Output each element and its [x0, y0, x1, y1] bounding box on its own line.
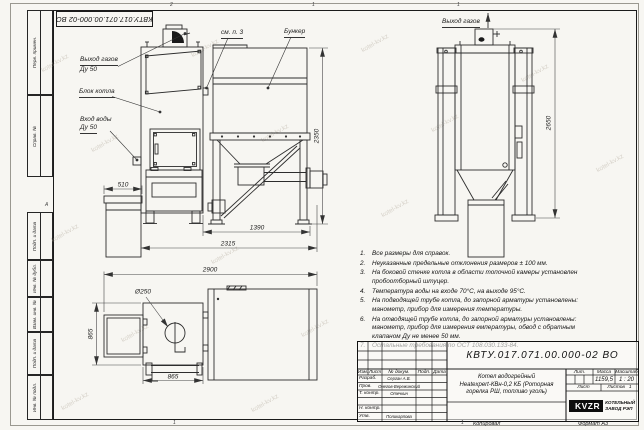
side-feeder-box	[468, 200, 504, 257]
callout-text: Блок котла	[79, 88, 115, 98]
note-text: Температура воды на входе 70°С, на выход…	[372, 288, 584, 297]
note-text: На боковой стенке котла в области топочн…	[372, 269, 584, 286]
note-number: 2.	[360, 260, 372, 269]
dim-2350: 2350	[314, 129, 321, 143]
callout-text: Ду 50	[80, 124, 97, 134]
tb-role-name: Онегов-Вережинский	[382, 383, 416, 391]
tb-sheets-label: Листов	[607, 385, 624, 390]
dim-865-horizontal: 865	[168, 374, 179, 381]
note-item: 2.Неуказанные предельные отклонения разм…	[360, 260, 636, 269]
bunker-box	[213, 48, 307, 133]
callout-text: Выход газов	[442, 18, 480, 28]
tb-lit-label: Лит.	[566, 369, 593, 375]
zone-number-bottom: 1	[173, 420, 176, 426]
callout-text: Выход газов	[80, 56, 118, 66]
note-number: 6.	[360, 316, 372, 342]
tb-product-title: Котел водогрейный Heatexpert-КВн-0,2 КБ …	[447, 369, 566, 402]
callout-gas-out-front: Выход газов Ду 50	[80, 56, 118, 74]
ash-box-flange	[104, 196, 142, 203]
middle-door	[154, 133, 197, 167]
note-item: 5.На подводящей трубе котла, до запорной…	[360, 297, 636, 314]
tb-mass-value: 1159,5	[593, 375, 615, 384]
dim-2650: 2650	[546, 116, 553, 130]
tb-product-line: Heatexpert-КВн-0,2 КБ (Роторная	[459, 382, 553, 390]
tb-role-name	[382, 405, 416, 413]
feeder-chute	[238, 167, 264, 185]
copied-label: Копировал	[473, 421, 500, 427]
note-item: 1.Все размеры для справок.	[360, 250, 636, 259]
callout-bunker: Бункер	[284, 28, 305, 38]
callout-text: Ду 50	[80, 66, 97, 73]
tb-role-label: Т. контр.	[358, 390, 383, 398]
tb-role-name: Серган А.В.	[382, 375, 416, 383]
side-view	[435, 13, 535, 257]
ash-box-top	[104, 315, 143, 357]
dim-1390: 1390	[250, 225, 264, 232]
dim-510: 510	[118, 182, 129, 189]
zone-letter-left: А	[45, 202, 48, 208]
side-chimney	[475, 29, 493, 45]
callout-gas-out-side: Выход газов	[442, 18, 480, 28]
note-number: 4.	[360, 288, 372, 297]
dim-865-vertical: 865	[88, 329, 95, 340]
callout-boiler-block: Блок котла	[79, 88, 115, 98]
note-number: 5.	[360, 297, 372, 314]
side-body	[455, 45, 515, 170]
note-number: 1.	[360, 250, 372, 259]
callout-text: см. п. 3	[221, 29, 243, 39]
boiler-top	[143, 303, 203, 365]
drawing-sheet: { "watermark": { "text": "kotel-kv.kz" }…	[0, 0, 644, 430]
tb-header-date: Дата	[432, 369, 447, 375]
dim-2315: 2315	[221, 241, 235, 248]
upper-door	[146, 51, 201, 94]
note-text: На отводящей трубе котла, до запорной ар…	[372, 316, 584, 342]
tb-role-label: Разраб.	[358, 375, 383, 383]
tb-product-line: Котел водогрейный	[478, 374, 535, 382]
tb-role-label: Н. контр.	[358, 405, 383, 413]
tb-sheet-label: Лист	[566, 384, 601, 391]
zone-number-bottom: 1	[461, 420, 464, 426]
zone-number-top: 1	[457, 2, 460, 8]
dim-chimney-dia: Ø250	[135, 289, 151, 296]
logo-caption-line: ЗАВОД РЭП	[605, 406, 635, 412]
note-item: 6.На отводящей трубе котла, до запорной …	[360, 316, 636, 342]
tb-product-line: горелка РШ, топливо уголь)	[466, 389, 547, 397]
note-number: 3.	[360, 269, 372, 286]
tb-role-label: Утв.	[358, 413, 383, 421]
tb-role-name: Отечкин	[382, 390, 416, 398]
format-label: Формат А3	[578, 421, 608, 427]
note-item: 4.Температура воды на входе 70°С, на вых…	[360, 288, 636, 297]
callout-see-item3: см. п. 3	[221, 29, 243, 39]
callout-water-in: Вход воды Ду 50	[80, 116, 112, 134]
tb-doc-number: КВТУ.017.071.00.000-02 ВО	[447, 342, 638, 369]
water-inlet-nozzle	[133, 157, 141, 165]
note-text: На подводящей трубе котла, до запорной а…	[372, 297, 584, 314]
tb-sheets-cell: Листов 1	[601, 384, 638, 391]
kvzr-logo-icon: KVZR	[569, 400, 603, 413]
tb-sheets-value: 1	[629, 385, 632, 390]
manufacturer-logo: KVZR КОТЕЛЬНЫЙ ЗАВОД РЭП	[566, 391, 638, 421]
technical-notes: 1.Все размеры для справок. 2.Неуказанные…	[360, 250, 636, 352]
callout-text: Вход воды	[80, 116, 112, 123]
dim-2900: 2900	[203, 267, 217, 274]
zone-number-top: 2	[170, 2, 173, 8]
note-text: Все размеры для справок.	[372, 250, 584, 259]
sampling-fitting	[203, 88, 208, 95]
tb-scale-value: 1 : 20	[615, 375, 638, 384]
callout-text: Бункер	[284, 28, 305, 38]
bunker-front-view	[208, 45, 327, 224]
burner-motor	[310, 171, 323, 188]
zone-number-top: 1	[312, 2, 315, 8]
note-item: 3.На боковой стенке котла в области топо…	[360, 269, 636, 286]
logo-caption: КОТЕЛЬНЫЙ ЗАВОД РЭП	[605, 400, 635, 411]
note-text: Неуказанные предельные отклонения размер…	[372, 260, 584, 269]
top-view	[104, 286, 317, 381]
lower-door	[146, 170, 202, 211]
title-block: КВТУ.017.071.00.000-02 ВО Изм. Лист № до…	[357, 341, 639, 422]
tb-role-name: Поликарпова	[382, 413, 416, 421]
bunker-top	[208, 289, 317, 380]
ash-box	[106, 203, 141, 257]
tb-header-sign: Подп.	[416, 369, 432, 375]
